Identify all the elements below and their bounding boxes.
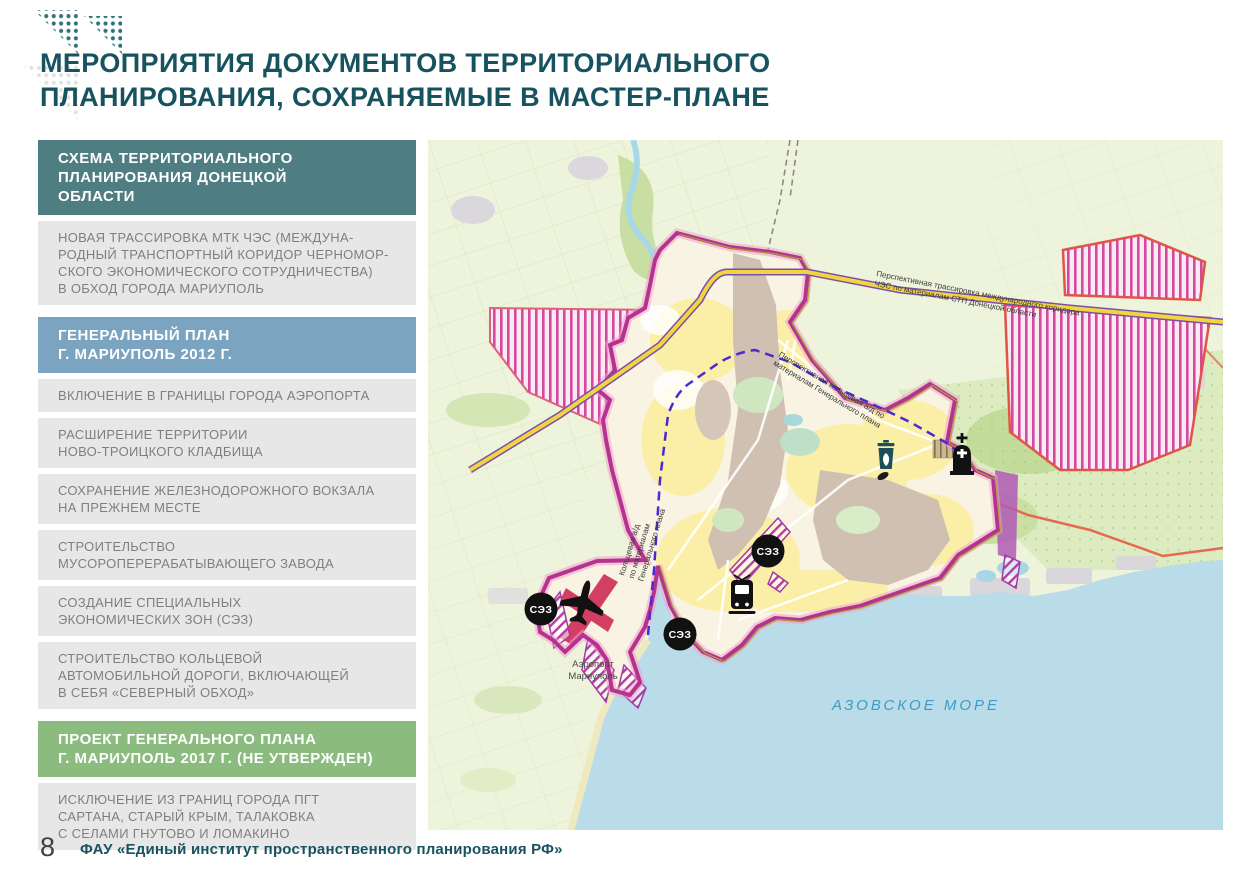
sidebar-item-cemetery: РАСШИРЕНИЕ ТЕРРИТОРИИ НОВО-ТРОИЦКОГО КЛА… — [38, 418, 416, 468]
hatch-zone-east-main — [1005, 305, 1210, 470]
sidebar-item-rail-station: СОХРАНЕНИЕ ЖЕЛЕЗНОДОРОЖНОГО ВОКЗАЛА НА П… — [38, 474, 416, 524]
sez-badge: СЭЗ — [664, 618, 697, 651]
sidebar-item-exclusion: ИСКЛЮЧЕНИЕ ИЗ ГРАНИЦ ГОРОДА ПГТ САРТАНА,… — [38, 783, 416, 850]
svg-text:Аэропорт: Аэропорт — [572, 659, 614, 670]
svg-text:СЭЗ: СЭЗ — [530, 604, 553, 616]
svg-text:Мариуполь: Мариуполь — [568, 671, 617, 682]
sidebar-item-waste-plant: СТРОИТЕЛЬСТВО МУСОРОПЕРЕРАБАТЫВАЮЩЕГО ЗА… — [38, 530, 416, 580]
map-mariupol: Перспективная трассировка международного… — [428, 140, 1223, 830]
footer-organization: ФАУ «Единый институт пространственного п… — [80, 841, 563, 858]
sidebar-header-stp-region: СХЕМА ТЕРРИТОРИАЛЬНОГО ПЛАНИРОВАНИЯ ДОНЕ… — [38, 140, 416, 215]
sidebar: СХЕМА ТЕРРИТОРИАЛЬНОГО ПЛАНИРОВАНИЯ ДОНЕ… — [38, 140, 416, 850]
page-number: 8 — [40, 832, 55, 863]
sez-badge: СЭЗ — [752, 535, 785, 568]
svg-text:СЭЗ: СЭЗ — [757, 546, 780, 558]
sidebar-item-ring-road: СТРОИТЕЛЬСТВО КОЛЬЦЕВОЙ АВТОМОБИЛЬНОЙ ДО… — [38, 642, 416, 709]
tram-icon — [729, 575, 756, 614]
airport-label: Аэропорт Мариуполь — [568, 659, 617, 682]
svg-text:СЭЗ: СЭЗ — [669, 629, 692, 641]
sidebar-item-sez: СОЗДАНИЕ СПЕЦИАЛЬНЫХ ЭКОНОМИЧЕСКИХ ЗОН (… — [38, 586, 416, 636]
sez-badge: СЭЗ — [525, 593, 558, 626]
page-title: МЕРОПРИЯТИЯ ДОКУМЕНТОВ ТЕРРИТОРИАЛЬНОГО … — [40, 46, 771, 114]
sidebar-header-genplan-2012: ГЕНЕРАЛЬНЫЙ ПЛАН Г. МАРИУПОЛЬ 2012 Г. — [38, 317, 416, 373]
sidebar-item-mtk-route: НОВАЯ ТРАССИРОВКА МТК ЧЭС (МЕЖДУНА- РОДН… — [38, 221, 416, 305]
sidebar-header-genplan-2017: ПРОЕКТ ГЕНЕРАЛЬНОГО ПЛАНА Г. МАРИУПОЛЬ 2… — [38, 721, 416, 777]
slide: МЕРОПРИЯТИЯ ДОКУМЕНТОВ ТЕРРИТОРИАЛЬНОГО … — [0, 0, 1260, 891]
sidebar-item-airport: ВКЛЮЧЕНИЕ В ГРАНИЦЫ ГОРОДА АЭРОПОРТА — [38, 379, 416, 412]
sea-label: АЗОВСКОЕ МОРЕ — [831, 697, 1000, 714]
